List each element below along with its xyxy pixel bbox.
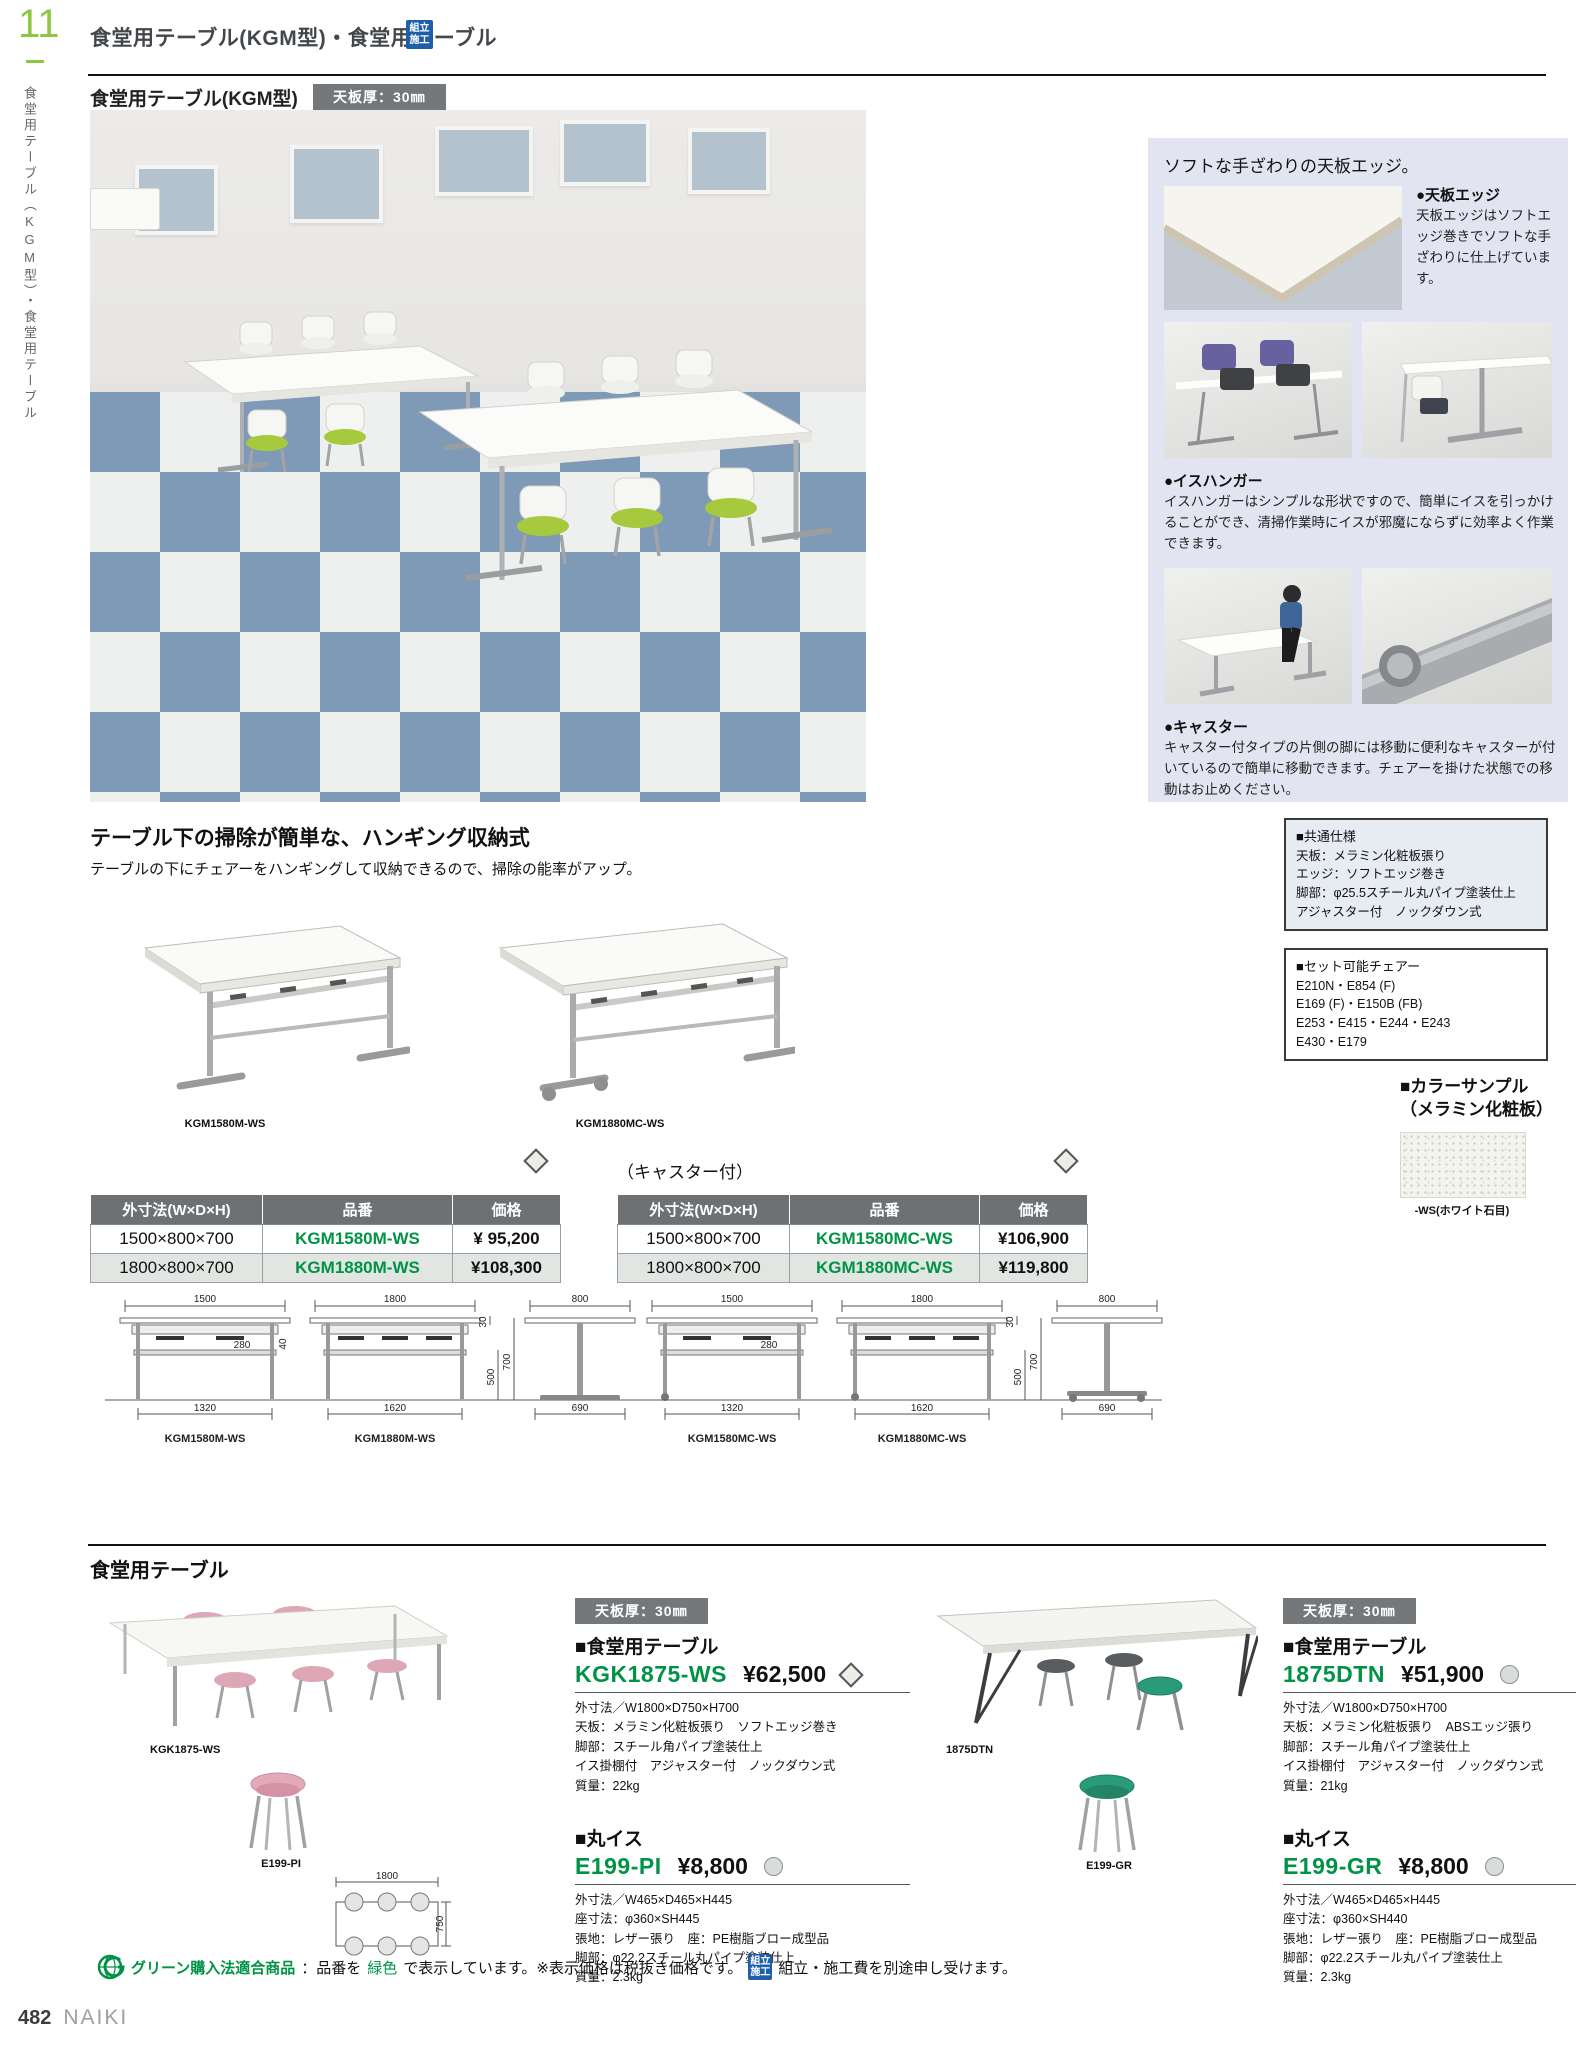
chair-hanger-photo — [1362, 322, 1552, 458]
header-rule — [88, 74, 1546, 76]
cell-code: KGM1580M-WS — [263, 1225, 453, 1254]
thickness-badge-kgm: 天板厚：30㎜ — [313, 84, 446, 110]
col-header-dimensions: 外寸法(W×D×H) — [91, 1195, 263, 1225]
svg-text:30: 30 — [1005, 1316, 1016, 1328]
cell-price: ¥119,800 — [980, 1254, 1088, 1283]
product-specs: 外寸法／W1800×D750×H700 天板：メラミン化粧板張り ABSエッジ張… — [1283, 1699, 1576, 1796]
svg-text:1500: 1500 — [721, 1294, 744, 1305]
table-row: 1500×800×700 KGM1580M-WS ¥ 95,200 — [91, 1225, 561, 1254]
diamond-mark-icon — [838, 1662, 863, 1687]
page-number: 482 — [18, 2007, 51, 2030]
cell-price: ¥108,300 — [453, 1254, 561, 1283]
cafeteria-photo — [90, 110, 866, 802]
stool-code-line: E199-PI ¥8,800 — [575, 1853, 910, 1885]
product-specs: 外寸法／W1800×D750×H700 天板：メラミン化粧板張り ソフトエッジ巻… — [575, 1699, 910, 1796]
spec-line: 座寸法：φ360×SH445 — [575, 1910, 910, 1929]
col-header-code: 品番 — [790, 1195, 980, 1225]
product-photo-caption: KGK1875-WS — [150, 1744, 270, 1756]
product-code-line: KGK1875-WS ¥62,500 — [575, 1661, 910, 1693]
cell-price: ¥ 95,200 — [453, 1225, 561, 1254]
assembly-badge-line2: 施工 — [406, 35, 433, 47]
svg-text:280: 280 — [234, 1340, 251, 1351]
footnote: グリーン購入法適合商品：品番を緑色で表示しています。※表示価格は税抜き価格です。… — [95, 1952, 1017, 1982]
product-category-heading: ■食堂用テーブル — [575, 1632, 910, 1659]
product-price: ¥62,500 — [743, 1661, 826, 1688]
svg-text:800: 800 — [572, 1294, 589, 1305]
hanger-heading: ●イスハンガー — [1164, 470, 1263, 491]
table-drawing-kgm1580m — [110, 888, 410, 1116]
svg-text:500: 500 — [1013, 1368, 1024, 1385]
stool-code-line: E199-GR ¥8,800 — [1283, 1853, 1576, 1885]
catalog-page: 11 食堂用テーブル（KGM型）・食堂用テーブル 食堂用テーブル(KGM型)・食… — [0, 0, 1576, 2047]
stool-caption: E199-PI — [246, 1858, 316, 1870]
hanging-heading: テーブル下の掃除が簡単な、ハンギング収納式 — [90, 822, 530, 852]
col-header-code: 品番 — [263, 1195, 453, 1225]
svg-text:1620: 1620 — [384, 1403, 407, 1414]
svg-text:1320: 1320 — [721, 1403, 744, 1414]
spec-line: 脚部：スチール角パイプ塗装仕上 — [575, 1738, 910, 1757]
svg-text:KGM1580MC-WS: KGM1580MC-WS — [688, 1433, 777, 1445]
svg-text:1800: 1800 — [384, 1294, 407, 1305]
cell-code: KGM1880MC-WS — [790, 1254, 980, 1283]
product-code: KGK1875-WS — [575, 1661, 727, 1688]
assembly-badge-line2: 施工 — [748, 1967, 772, 1979]
spec-line: イス掛棚付 アジャスター付 ノックダウン式 — [575, 1757, 910, 1776]
svg-text:1800: 1800 — [911, 1294, 934, 1305]
common-spec-line: 天板：メラミン化粧板張り — [1296, 847, 1536, 866]
col-header-dimensions: 外寸法(W×D×H) — [618, 1195, 790, 1225]
section-rule — [88, 1544, 1546, 1546]
col-header-price: 価格 — [980, 1195, 1088, 1225]
tabletop-edge-photo — [1164, 186, 1402, 310]
col-header-price: 価格 — [453, 1195, 561, 1225]
caster-table-label: （キャスター付） — [617, 1158, 753, 1183]
stool-caption: E199-GR — [1074, 1860, 1144, 1872]
svg-text:KGM1880M-WS: KGM1880M-WS — [355, 1433, 436, 1445]
spec-line: イス掛棚付 アジャスター付 ノックダウン式 — [1283, 1757, 1576, 1776]
svg-text:700: 700 — [1029, 1353, 1040, 1370]
spec-line: 天板：メラミン化粧板張り ソフトエッジ巻き — [575, 1718, 910, 1737]
svg-text:690: 690 — [572, 1403, 589, 1414]
assembly-construction-icon: 組立 施工 — [406, 20, 433, 49]
chapter-dash — [26, 60, 44, 63]
compatible-chairs-line: E430・E179 — [1296, 1033, 1536, 1052]
product-block-1875dtn: 天板厚：30㎜ ■食堂用テーブル 1875DTN ¥51,900 外寸法／W18… — [1283, 1598, 1576, 1988]
compatible-chairs-box: ■セット可能チェアー E210N・E854 (F) E169 (F)・E150B… — [1284, 948, 1548, 1061]
footnote-seg1: ：品番を — [301, 1957, 361, 1978]
spec-line: 質量：2.3kg — [1283, 1968, 1576, 1987]
spec-line: 質量：22kg — [575, 1777, 910, 1796]
spec-line: 外寸法／W1800×D750×H700 — [1283, 1699, 1576, 1718]
stool-specs: 外寸法／W465×D465×H445 座寸法：φ360×SH440 張地：レザー… — [1283, 1891, 1576, 1988]
color-sample-title-line1: ■カラーサンプル — [1400, 1076, 1553, 1099]
stool-code: E199-GR — [1283, 1853, 1382, 1880]
svg-text:690: 690 — [1099, 1403, 1116, 1414]
section-title-kgm: 食堂用テーブル(KGM型) — [90, 84, 298, 111]
svg-text:500: 500 — [486, 1368, 497, 1385]
svg-text:KGM1880MC-WS: KGM1880MC-WS — [878, 1433, 967, 1445]
cell-dimensions: 1500×800×700 — [618, 1225, 790, 1254]
spec-line: 座寸法：φ360×SH440 — [1283, 1910, 1576, 1929]
common-spec-line: エッジ：ソフトエッジ巻き — [1296, 865, 1536, 884]
table-row: 1500×800×700 KGM1580MC-WS ¥106,900 — [618, 1225, 1088, 1254]
table-row: 1800×800×700 KGM1880M-WS ¥108,300 — [91, 1254, 561, 1283]
diamond-mark-icon — [523, 1148, 548, 1173]
stool-category-heading: ■丸イス — [1283, 1824, 1576, 1851]
spec-line: 質量：21kg — [1283, 1777, 1576, 1796]
product-photo-caption: 1875DTN — [946, 1744, 1046, 1756]
diamond-mark-icon — [1053, 1148, 1078, 1173]
green-purchase-icon — [95, 1952, 125, 1982]
e199-gr-stool-photo — [1072, 1768, 1142, 1858]
svg-text:1320: 1320 — [194, 1403, 217, 1414]
price-table-caster: 外寸法(W×D×H) 品番 価格 1500×800×700 KGM1580MC-… — [617, 1194, 1088, 1283]
caster-body: キャスター付タイプの片側の脚には移動に便利なキャスターが付いているので簡単に移動… — [1164, 738, 1556, 801]
color-sample-title-line2: （メラミン化粧板） — [1400, 1099, 1553, 1122]
tables-and-chairs-illustration — [90, 110, 866, 802]
svg-text:750: 750 — [435, 1915, 446, 1932]
caster-closeup-photo — [1362, 568, 1552, 704]
color-swatch-label: -WS(ホワイト石目) — [1388, 1202, 1536, 1218]
common-spec-line: アジャスター付 ノックダウン式 — [1296, 903, 1536, 922]
svg-text:280: 280 — [761, 1340, 778, 1351]
compatible-chairs-line: E169 (F)・E150B (FB) — [1296, 995, 1536, 1014]
cell-code: KGM1880M-WS — [263, 1254, 453, 1283]
drawing-caption: KGM1880MC-WS — [545, 1118, 695, 1130]
side-vertical-label: 食堂用テーブル（KGM型）・食堂用テーブル — [20, 86, 39, 646]
product-code: 1875DTN — [1283, 1661, 1385, 1688]
dimension-diagram-standard: 1500 280 40 1320 KGM1580M-WS 1800 1620 K… — [90, 1292, 645, 1452]
edge-heading: ●天板エッジ — [1416, 184, 1500, 205]
compatible-chairs-line: E253・E415・E244・E243 — [1296, 1014, 1536, 1033]
edge-body: 天板エッジはソフトエッジ巻きでソフトな手ざわりに仕上げています。 — [1416, 206, 1554, 290]
color-sample-title: ■カラーサンプル （メラミン化粧板） — [1400, 1076, 1553, 1122]
dtn1875-photo — [928, 1578, 1258, 1740]
price-table-standard: 外寸法(W×D×H) 品番 価格 1500×800×700 KGM1580M-W… — [90, 1194, 561, 1283]
common-spec-box: ■共通仕様 天板：メラミン化粧板張り エッジ：ソフトエッジ巻き 脚部：φ25.5… — [1284, 818, 1548, 931]
footnote-seg3: 組立・施工費を別途申し受けます。 — [778, 1957, 1017, 1978]
kgk1875-photo — [95, 1578, 450, 1740]
footnote-green-word: 緑色 — [367, 1957, 397, 1978]
page-chapter-number: 11 — [18, 2, 60, 47]
thickness-badge: 天板厚：30㎜ — [575, 1598, 708, 1624]
stool-price: ¥8,800 — [1398, 1853, 1468, 1880]
svg-text:1620: 1620 — [911, 1403, 934, 1414]
svg-text:1500: 1500 — [194, 1294, 217, 1305]
green-purchase-label: グリーン購入法適合商品 — [131, 1957, 295, 1978]
product-category-heading: ■食堂用テーブル — [1283, 1632, 1576, 1659]
product-code-line: 1875DTN ¥51,900 — [1283, 1661, 1576, 1693]
table-row: 1800×800×700 KGM1880MC-WS ¥119,800 — [618, 1254, 1088, 1283]
cell-price: ¥106,900 — [980, 1225, 1088, 1254]
svg-text:KGM1580M-WS: KGM1580M-WS — [165, 1433, 246, 1445]
svg-text:1800: 1800 — [376, 1872, 399, 1882]
cell-code: KGM1580MC-WS — [790, 1225, 980, 1254]
table-drawing-kgm1880mc — [465, 888, 795, 1116]
e199-pi-stool-photo — [243, 1766, 313, 1856]
compatible-chairs-line: E210N・E854 (F) — [1296, 977, 1536, 996]
hanger-body: イスハンガーはシンプルな形状ですので、簡単にイスを引っかけることができ、清掃作業… — [1164, 492, 1556, 555]
spec-line: 外寸法／W465×D465×H445 — [575, 1891, 910, 1910]
common-spec-line: 脚部：φ25.5スチール丸パイプ塗装仕上 — [1296, 884, 1536, 903]
assembly-construction-icon: 組立 施工 — [748, 1954, 772, 1980]
assembly-badge-line1: 組立 — [748, 1956, 772, 1968]
svg-text:800: 800 — [1099, 1294, 1116, 1305]
dimension-diagram-caster: 1500 280 1320 KGM1580MC-WS 1800 1620 KGM… — [617, 1292, 1172, 1452]
circle-mark-icon — [1500, 1665, 1519, 1684]
product-block-kgk1875: 天板厚：30㎜ ■食堂用テーブル KGK1875-WS ¥62,500 外寸法／… — [575, 1598, 910, 1988]
page-title: 食堂用テーブル(KGM型)・食堂用テーブル — [90, 22, 497, 52]
svg-text:30: 30 — [478, 1316, 489, 1328]
stool-code: E199-PI — [575, 1853, 662, 1880]
spec-line: 張地：レザー張り 座：PE樹脂ブロー成型品 — [575, 1930, 910, 1949]
cell-dimensions: 1500×800×700 — [91, 1225, 263, 1254]
drawing-caption: KGM1580M-WS — [155, 1118, 295, 1130]
thickness-badge: 天板厚：30㎜ — [1283, 1598, 1416, 1624]
page-footer: 482 NAIKI — [18, 2006, 128, 2030]
spec-line: 外寸法／W465×D465×H445 — [1283, 1891, 1576, 1910]
features-panel: ソフトな手ざわりの天板エッジ。 ●天板エッジ 天板エッジはソフトエッジ巻きでソフ… — [1148, 138, 1568, 802]
features-title: ソフトな手ざわりの天板エッジ。 — [1164, 152, 1419, 177]
stool-price: ¥8,800 — [678, 1853, 748, 1880]
stool-category-heading: ■丸イス — [575, 1824, 910, 1851]
assembly-badge-line1: 組立 — [406, 23, 433, 35]
hanging-subtext: テーブルの下にチェアーをハンギングして収納できるので、掃除の能率がアップ。 — [90, 858, 641, 879]
spec-line: 外寸法／W1800×D750×H700 — [575, 1699, 910, 1718]
caster-heading: ●キャスター — [1164, 716, 1248, 737]
chairs-hung-photo — [1164, 322, 1352, 458]
cell-dimensions: 1800×800×700 — [618, 1254, 790, 1283]
spec-line: 脚部：スチール角パイプ塗装仕上 — [1283, 1738, 1576, 1757]
compatible-chairs-title: ■セット可能チェアー — [1296, 957, 1536, 977]
common-spec-title: ■共通仕様 — [1296, 827, 1536, 847]
product-price: ¥51,900 — [1401, 1661, 1484, 1688]
spec-line: 脚部：φ22.2スチール丸パイプ塗装仕上 — [1283, 1949, 1576, 1968]
cell-dimensions: 1800×800×700 — [91, 1254, 263, 1283]
moving-table-photo — [1164, 568, 1352, 704]
circle-mark-icon — [764, 1857, 783, 1876]
svg-text:700: 700 — [502, 1353, 513, 1370]
thickness-badge-label: 天板厚：30㎜ — [313, 84, 446, 110]
spec-line: 張地：レザー張り 座：PE樹脂ブロー成型品 — [1283, 1930, 1576, 1949]
circle-mark-icon — [1485, 1857, 1504, 1876]
footnote-seg2: で表示しています。※表示価格は税抜き価格です。 — [403, 1957, 742, 1978]
color-swatch-ws — [1400, 1132, 1526, 1198]
svg-text:40: 40 — [278, 1338, 289, 1350]
spec-line: 天板：メラミン化粧板張り ABSエッジ張り — [1283, 1718, 1576, 1737]
brand-logo: NAIKI — [63, 2006, 128, 2030]
